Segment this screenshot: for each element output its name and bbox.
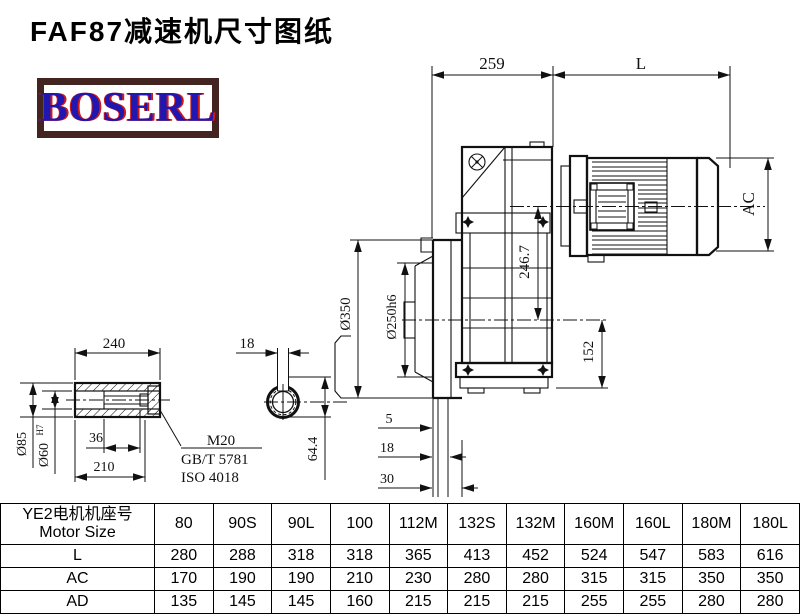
- table-cell: 215: [448, 591, 507, 614]
- bolt-mark: [537, 364, 549, 376]
- dim-246-7: 246.7: [517, 207, 538, 320]
- row-label: L: [1, 545, 155, 568]
- svg-text:5: 5: [386, 412, 393, 427]
- column-header: 90S: [213, 504, 272, 545]
- svg-text:ISO 4018: ISO 4018: [181, 470, 239, 486]
- svg-text:18: 18: [240, 336, 255, 352]
- table-header-line2: Motor Size: [1, 524, 154, 542]
- column-header: 112M: [389, 504, 448, 545]
- column-header: 180L: [741, 504, 800, 545]
- row-label: AD: [1, 591, 155, 614]
- svg-text:240: 240: [103, 336, 126, 352]
- svg-text:Ø85: Ø85: [15, 432, 30, 456]
- table-cell: 365: [389, 545, 448, 568]
- table-cell: 190: [272, 568, 331, 591]
- drawing-page: FAF87减速机尺寸图纸 BOSERL: [0, 0, 800, 614]
- svg-text:36: 36: [89, 431, 103, 446]
- main-view-motor: [510, 156, 765, 262]
- svg-text:18: 18: [380, 441, 394, 456]
- column-header: 132M: [506, 504, 565, 545]
- table-cell: 160: [330, 591, 389, 614]
- svg-text:AC: AC: [739, 192, 758, 216]
- dim-AC: AC: [716, 158, 774, 251]
- dim-offset-5: 5: [378, 412, 432, 428]
- row-label: AC: [1, 568, 155, 591]
- table-cell: 350: [741, 568, 800, 591]
- table-cell: 583: [682, 545, 741, 568]
- dim-keyway-18: 18: [236, 336, 309, 353]
- svg-text:Ø60: Ø60: [37, 443, 52, 467]
- dim-152: 152: [556, 320, 608, 388]
- svg-text:GB/T 5781: GB/T 5781: [181, 452, 249, 468]
- crosshair-mark: [469, 154, 485, 170]
- column-header: 160M: [565, 504, 624, 545]
- table-cell: 280: [682, 591, 741, 614]
- table-cell: 315: [624, 568, 683, 591]
- table-cell: 547: [624, 545, 683, 568]
- table-cell: 170: [155, 568, 214, 591]
- table-cell: 215: [389, 591, 448, 614]
- bolt-mark: [537, 216, 549, 228]
- table-cell: 280: [448, 568, 507, 591]
- bolt-mark: [462, 216, 474, 228]
- svg-text:M20: M20: [207, 433, 235, 449]
- dim-hub-210: 210: [75, 420, 145, 482]
- column-header: 132S: [448, 504, 507, 545]
- table-cell: 616: [741, 545, 800, 568]
- dimension-drawing: 259 L AC 246.7 152 Ø350: [0, 0, 800, 503]
- table-cell: 413: [448, 545, 507, 568]
- svg-text:Ø350: Ø350: [338, 297, 354, 330]
- table-cell: 452: [506, 545, 565, 568]
- main-view-flange: [335, 238, 462, 497]
- motor-size-table: YE2电机机座号 Motor Size 8090S90L100112M132S1…: [0, 503, 800, 614]
- column-header: 180M: [682, 504, 741, 545]
- column-header: 90L: [272, 504, 331, 545]
- svg-text:246.7: 246.7: [517, 245, 533, 279]
- bolt-mark: [462, 364, 474, 376]
- svg-text:Ø250h6: Ø250h6: [385, 294, 400, 339]
- table-cell: 215: [506, 591, 565, 614]
- dim-offset-30: 30: [378, 472, 478, 488]
- svg-text:152: 152: [581, 341, 597, 364]
- dim-offset-18: 18: [378, 441, 466, 457]
- table-cell: 280: [155, 545, 214, 568]
- dim-bore-60H7: Ø60 H7: [35, 391, 72, 474]
- table-cell: 210: [330, 568, 389, 591]
- dim-shaft-240: 240: [75, 336, 160, 380]
- bolt-note: M20 GB/T 5781 ISO 4018: [160, 410, 262, 486]
- table-cell: 288: [213, 545, 272, 568]
- column-header: 80: [155, 504, 214, 545]
- table-cell: 135: [155, 591, 214, 614]
- table-cell: 145: [272, 591, 331, 614]
- table-cell: 350: [682, 568, 741, 591]
- svg-text:259: 259: [479, 54, 505, 73]
- table-cell: 255: [624, 591, 683, 614]
- table-cell: 315: [565, 568, 624, 591]
- svg-text:H7: H7: [35, 424, 45, 435]
- table-cell: 318: [272, 545, 331, 568]
- svg-text:30: 30: [380, 472, 394, 487]
- table-cell: 145: [213, 591, 272, 614]
- dim-L: L: [553, 54, 730, 168]
- table-cell: 255: [565, 591, 624, 614]
- table-cell: 318: [330, 545, 389, 568]
- column-header: 100: [330, 504, 389, 545]
- table-cell: 524: [565, 545, 624, 568]
- shaft-detail-view: [66, 383, 170, 417]
- table-row: AC170190190210230280280315315350350: [1, 568, 800, 591]
- svg-text:210: 210: [94, 460, 115, 475]
- table-header-line1: YE2电机机座号: [1, 506, 154, 524]
- svg-text:64.4: 64.4: [306, 437, 321, 462]
- shaft-section-view: [264, 348, 349, 420]
- table-cell: 230: [389, 568, 448, 591]
- table-cell: 280: [741, 591, 800, 614]
- table-cell: 280: [506, 568, 565, 591]
- table-cell: 190: [213, 568, 272, 591]
- table-row: L280288318318365413452524547583616: [1, 545, 800, 568]
- table-row: AD135145145160215215215255255280280: [1, 591, 800, 614]
- table-header-motor-size: YE2电机机座号 Motor Size: [1, 504, 155, 545]
- column-header: 160L: [624, 504, 683, 545]
- svg-text:L: L: [636, 54, 646, 73]
